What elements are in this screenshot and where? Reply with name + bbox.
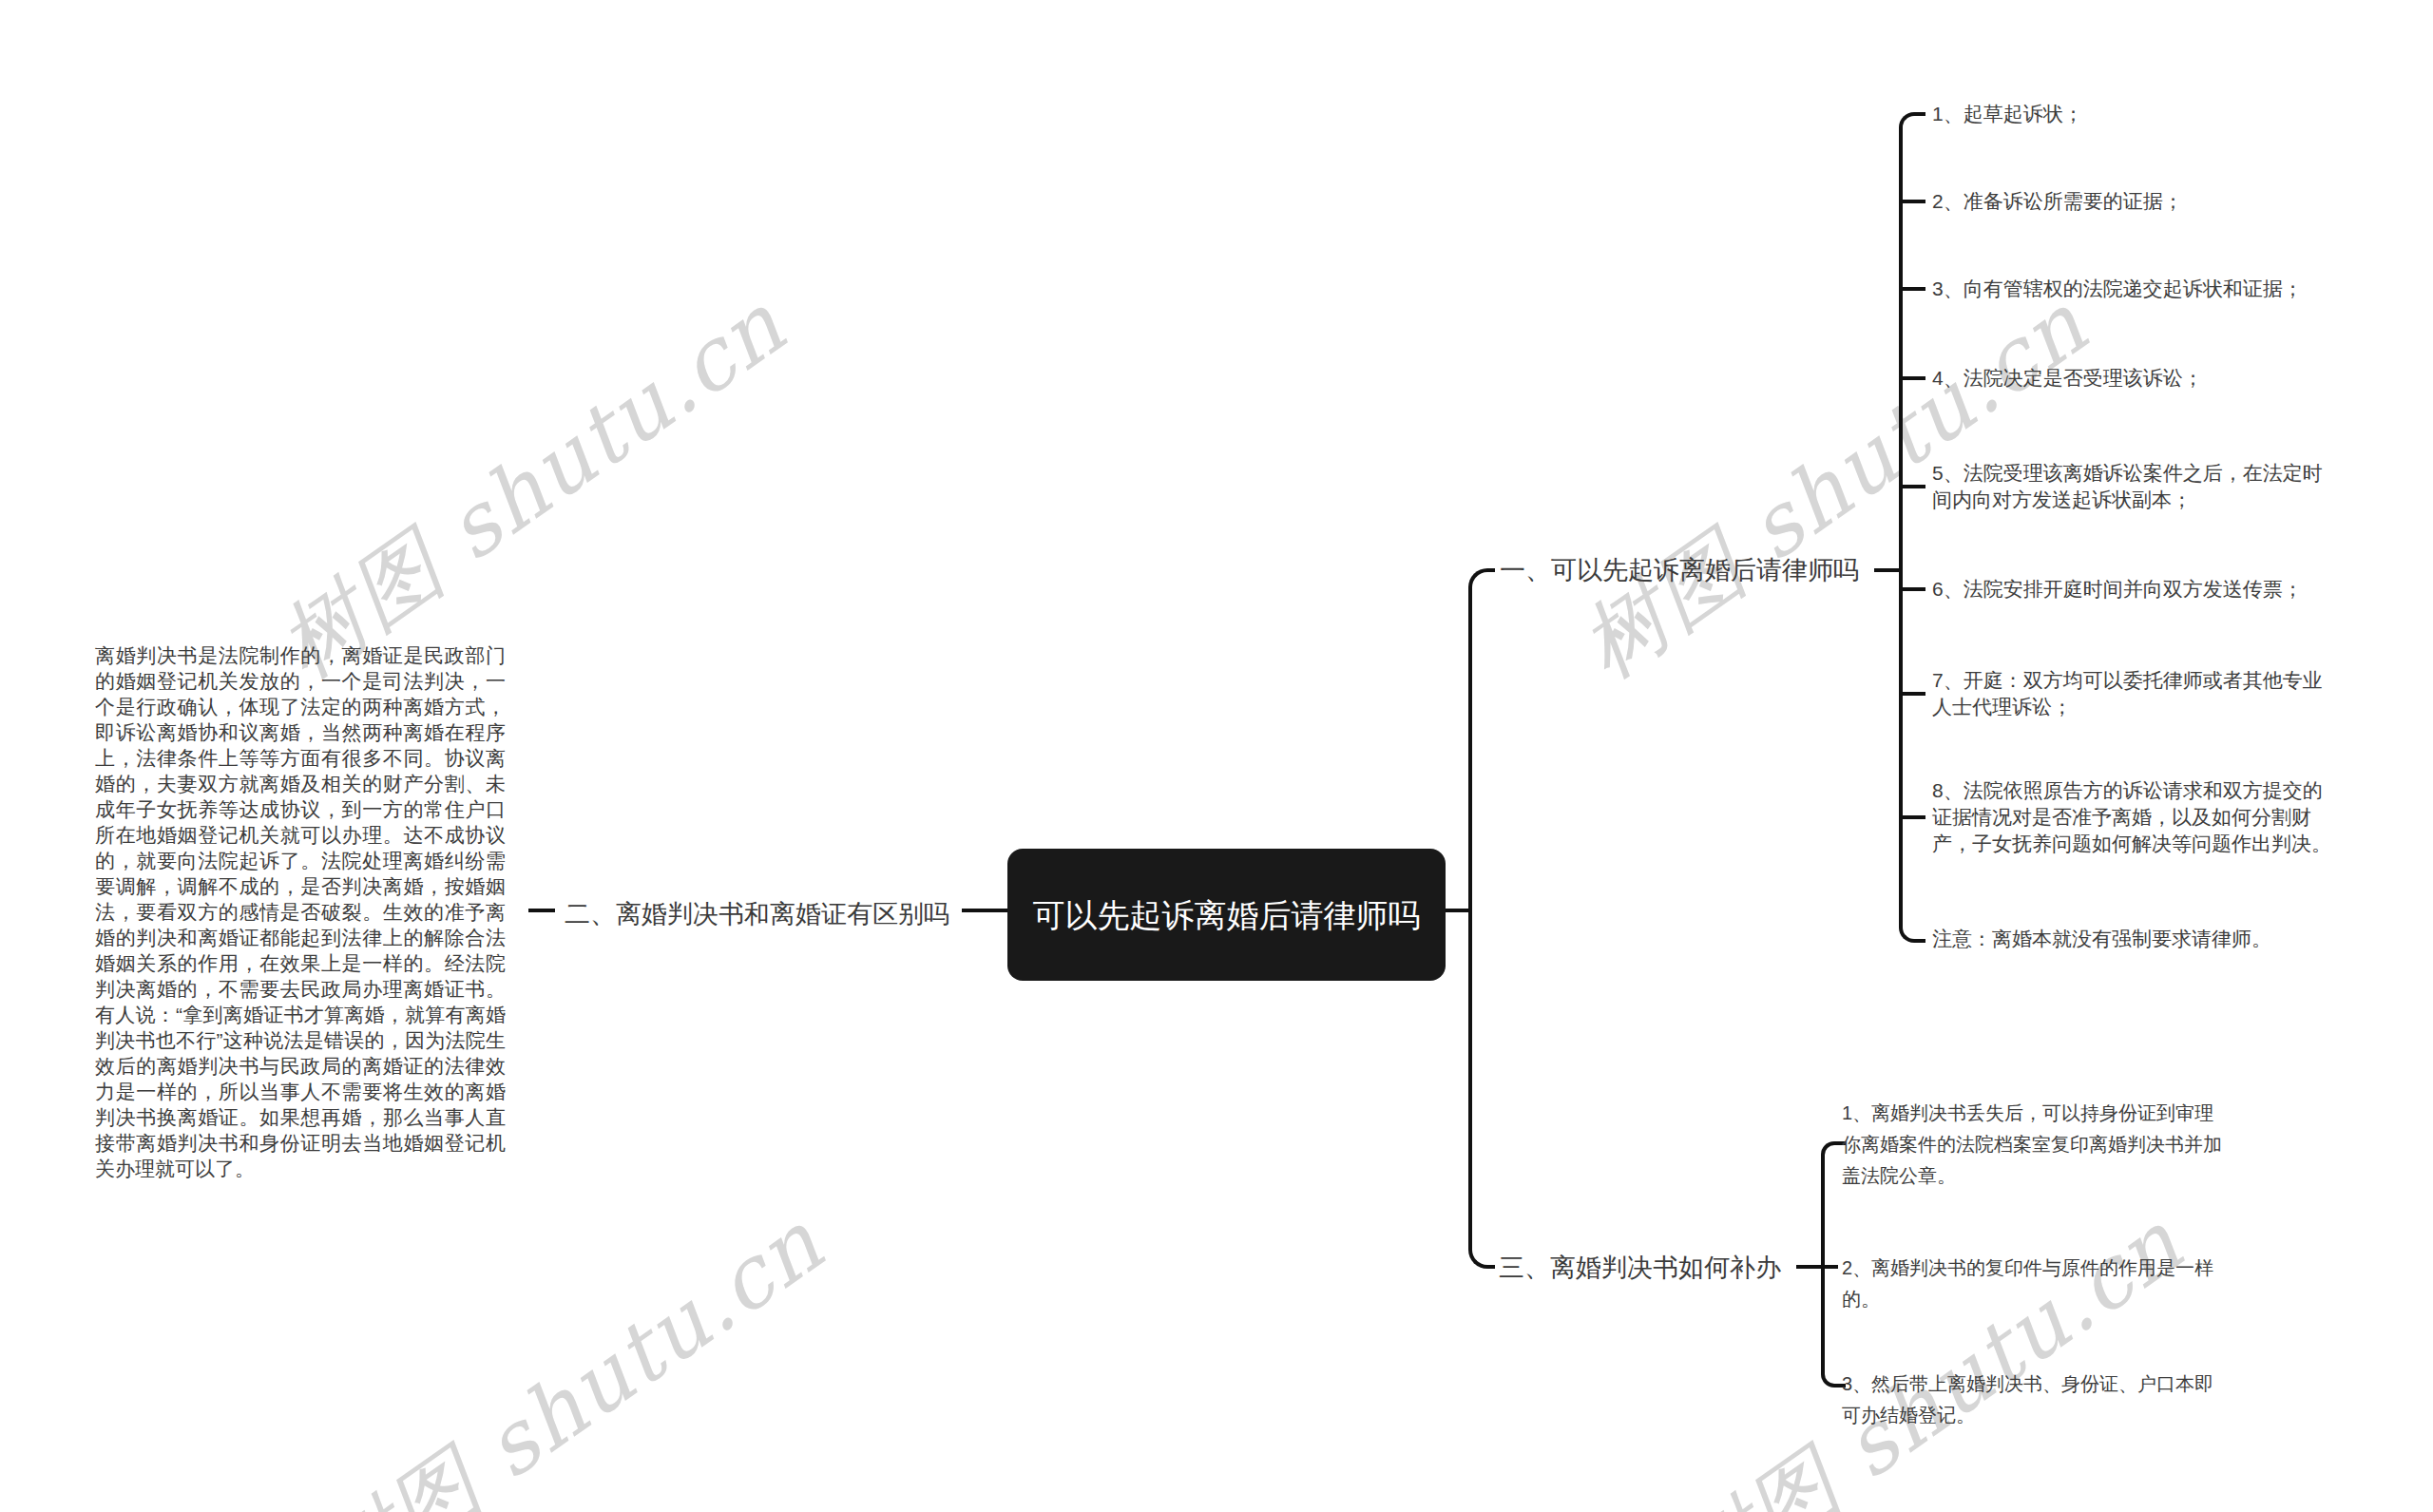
branch-one-item-6[interactable]: 6、法院安排开庭时间并向双方发送传票； [1932, 576, 2331, 603]
shutu-watermark: 树图 shutu.cn [257, 269, 809, 704]
tick-item [1901, 376, 1925, 380]
tick-item [1901, 815, 1925, 819]
branch-one-item-4[interactable]: 4、法院决定是否受理该诉讼； [1932, 365, 2331, 392]
shutu-watermark: 树图 shutu.cn [295, 1187, 847, 1512]
tick-item [1901, 485, 1925, 488]
branch-three-item-2[interactable]: 2、离婚判决书的复印件与原件的作用是一样的。 [1842, 1253, 2224, 1315]
mindmap-canvas: 树图 shutu.cn 树图 shutu.cn 树图 shutu.cn 树图 s… [0, 0, 2433, 1512]
branch-two-paragraph-node[interactable]: 离婚判决书是法院制作的，离婚证是民政部门的婚姻登记机关发放的，一个是司法判决，一… [95, 642, 506, 1181]
trunk-center-branches [1468, 568, 1495, 1269]
connector-label-two-to-center [962, 909, 1008, 912]
central-topic-text: 可以先起诉离婚后请律师吗 [1033, 890, 1421, 940]
tick-item [1901, 200, 1925, 203]
branch-one-item-8[interactable]: 8、法院依照原告方的诉讼请求和双方提交的证据情况对是否准予离婚，以及如何分割财产… [1932, 777, 2331, 857]
branch-one-item-note[interactable]: 注意：离婚本就没有强制要求请律师。 [1932, 926, 2331, 952]
branch-one-item-7[interactable]: 7、开庭：双方均可以委托律师或者其他专业人士代理诉讼； [1932, 667, 2331, 720]
branch-three-item-3[interactable]: 3、然后带上离婚判决书、身份证、户口本即可办结婚登记。 [1842, 1368, 2224, 1431]
branch-two-node[interactable]: 二、离婚判决书和离婚证有区别吗 [565, 898, 949, 930]
branch-three-item-1[interactable]: 1、离婚判决书丢失后，可以持身份证到审理你离婚案件的法院档案室复印离婚判决书并加… [1842, 1098, 2224, 1192]
branch-one-item-5[interactable]: 5、法院受理该离婚诉讼案件之后，在法定时间内向对方发送起诉状副本； [1932, 460, 2331, 513]
branch-one-item-3[interactable]: 3、向有管辖权的法院递交起诉状和证据； [1932, 276, 2331, 302]
connector-paragraph-to-label-two [528, 909, 555, 912]
tick-item [1901, 692, 1925, 696]
branch-one-item-1[interactable]: 1、起草起诉状； [1932, 101, 2331, 127]
branch-three-node[interactable]: 三、离婚判决书如何补办 [1499, 1252, 1781, 1284]
central-topic-node[interactable]: 可以先起诉离婚后请律师吗 [1007, 849, 1446, 981]
tick-item [1901, 587, 1925, 591]
tick-item [1901, 287, 1925, 291]
branch-one-node[interactable]: 一、可以先起诉离婚后请律师吗 [1500, 554, 1859, 586]
shutu-watermark: 树图 shutu.cn [1654, 1187, 2206, 1512]
branch-one-item-2[interactable]: 2、准备诉讼所需要的证据； [1932, 188, 2331, 215]
